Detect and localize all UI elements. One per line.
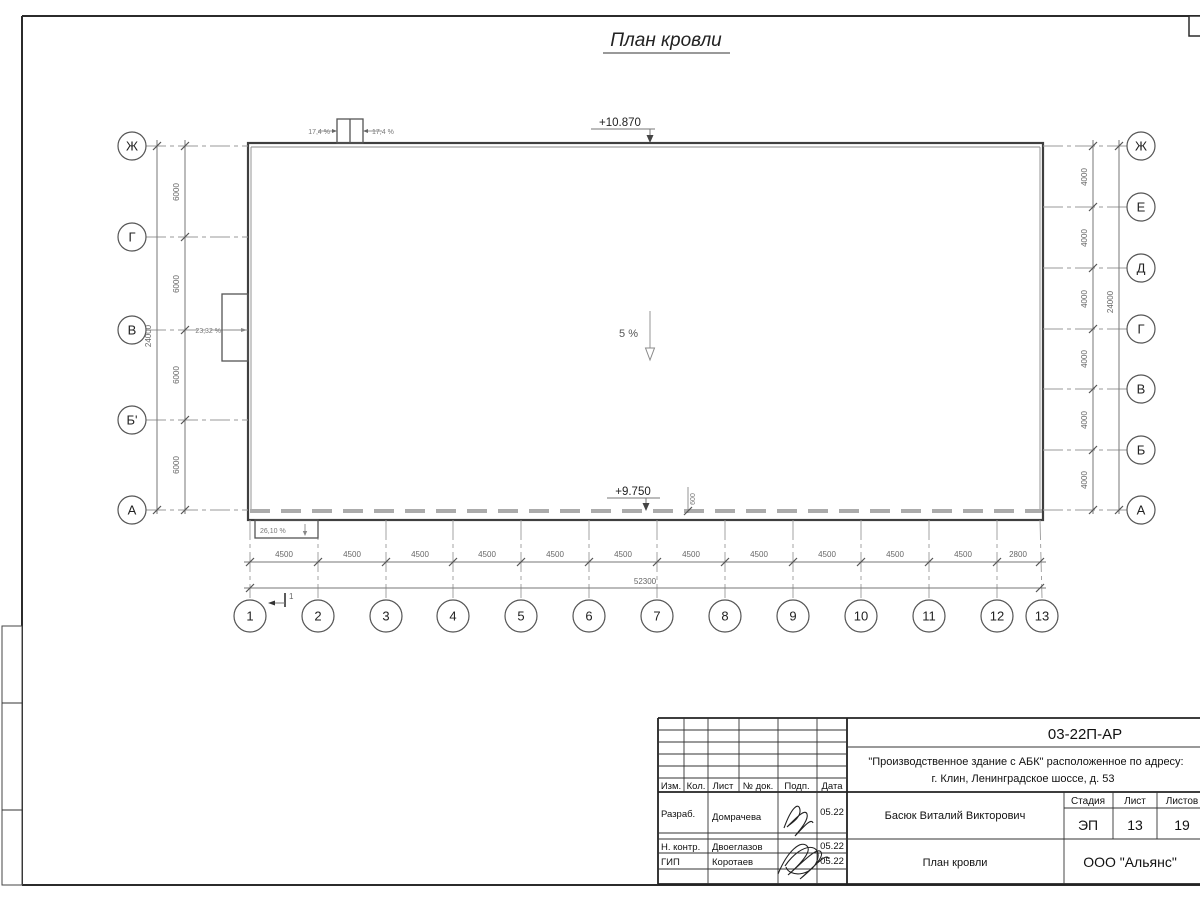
dim-left-4: 6000 [172,456,181,474]
dim-left-2: 6000 [172,275,181,293]
drawing-sheet: План кровли [0,0,1200,900]
col-izm: Изм. [661,781,681,792]
axis-left-2: Г [128,230,135,245]
dim-bottom-9: 4500 [818,550,836,559]
parapet-offset-label: 600 [690,493,697,505]
roof-plan-drawing: План кровли [0,0,1200,900]
signature-1 [784,806,813,836]
axis-right-2: Е [1137,200,1146,215]
dim-right-5: 4000 [1080,411,1089,429]
row2-name: Двоеглазов [712,842,763,853]
section-mark: 1 [268,592,294,607]
dimension-ticks [153,142,1123,592]
axis-right-5: В [1137,382,1146,397]
arrow-right-icon [332,129,337,133]
skylight: 17,4 % 17,4 % [308,119,394,143]
axis-right-7: А [1137,503,1146,518]
project-name-line2: г. Клин, Ленинградское шоссе, д. 53 [932,773,1115,785]
dim-right-2: 4000 [1080,229,1089,247]
skylight-slope-right-label: 17,4 % [372,129,394,136]
section-mark-label: 1 [289,592,294,601]
arrow-right-icon [241,328,247,332]
section-arrow-left-icon [268,601,275,606]
axis-left-3: В [128,323,137,338]
sheet-name: План кровли [923,857,988,869]
dim-bottom-10: 4500 [886,550,904,559]
sheet-label: Лист [1124,796,1146,807]
corner-box [1189,16,1200,36]
arrow-down-icon [643,503,650,511]
slope-canopy-label: 26,10 % [260,528,286,535]
axis-bottom-12: 12 [990,609,1004,624]
elevation-bottom: +9.750 600 [607,486,697,515]
slope-center-label: 5 % [619,328,638,340]
axis-bubbles-right: Ж Е Д Г В Б А [1127,132,1155,524]
axis-right-4: Г [1137,322,1144,337]
axis-right-1: Ж [1135,139,1147,154]
sheets-label: Листов [1166,796,1199,807]
dimension-lines [153,140,1123,592]
axis-right-6: Б [1137,443,1146,458]
axis-left-5: А [128,503,137,518]
stage-label: Стадия [1071,796,1105,807]
roof-outline [248,143,1043,520]
dim-bottom-3: 4500 [411,550,429,559]
axis-bottom-13: 13 [1035,609,1049,624]
dimension-labels: 6000 6000 6000 6000 24000 4000 4000 4000… [144,168,1115,586]
row1-date: 05.22 [820,807,844,818]
dim-bottom-1: 4500 [275,550,293,559]
arrow-down-icon [303,531,307,536]
axis-bottom-3: 3 [382,609,389,624]
row2-date: 05.22 [820,841,844,852]
row1-name: Домрачева [712,812,762,823]
dim-bottom-6: 4500 [614,550,632,559]
col-data: Дата [821,781,843,792]
axis-bottom-10: 10 [854,609,868,624]
axis-bubbles-bottom: 1 2 3 4 5 6 7 8 9 10 11 12 13 [234,600,1058,632]
filing-strip [2,626,22,885]
axis-bottom-11: 11 [922,609,936,624]
row1-role: Разраб. [661,809,695,820]
axis-bottom-5: 5 [517,609,524,624]
page-title: План кровли [610,30,722,51]
row3-role: ГИП [661,857,680,868]
canopy-left: 23,32 % [195,294,248,361]
sheet-value: 13 [1127,817,1143,833]
row2-role: Н. контр. [661,842,700,853]
axis-left-1: Ж [126,139,138,154]
elevation-top: +10.870 [591,117,655,143]
dim-right-1: 4000 [1080,168,1089,186]
axis-bottom-6: 6 [585,609,592,624]
company-name: ООО "Альянс" [1083,854,1177,870]
dim-bottom-total: 52300 [634,577,657,586]
elevation-bottom-label: +9.750 [615,486,651,498]
roof-rect [248,143,1043,520]
slope-left-label: 23,32 % [195,328,221,335]
stage-value: ЭП [1078,817,1098,833]
axis-bottom-1: 1 [246,609,253,624]
axis-bottom-2: 2 [314,609,321,624]
dim-bottom-11: 4500 [954,550,972,559]
axis-bottom-7: 7 [653,609,660,624]
dim-left-1: 6000 [172,183,181,201]
sheets-value: 19 [1174,817,1190,833]
axis-bubbles-left: Ж Г В Б' А [118,132,146,524]
annotations: 17,4 % 17,4 % +10.870 5 % +9.750 [195,117,697,607]
dim-left-3: 6000 [172,366,181,384]
slope-arrow-down-icon [646,348,655,360]
arrow-left-icon [363,129,368,133]
dim-bottom-7: 4500 [682,550,700,559]
dim-right-3: 4000 [1080,290,1089,308]
axis-right-3: Д [1137,261,1146,276]
doc-number: 03-22П-АР [1048,726,1122,743]
axis-bottom-8: 8 [721,609,728,624]
axis-left-4: Б' [126,413,137,428]
row3-name: Коротаев [712,857,753,868]
title-block: 03-22П-АР "Производственное здание с АБК… [658,718,1200,884]
axis-lines [146,146,1127,598]
approver-name: Басюк Виталий Викторович [885,810,1026,822]
slope-center: 5 % [619,311,654,360]
dim-bottom-12: 2800 [1009,550,1027,559]
col-ndok: № док. [743,781,773,792]
dim-bottom-4: 4500 [478,550,496,559]
col-kol: Кол. [687,781,706,792]
arrow-down-icon [647,135,654,143]
dim-right-6: 4000 [1080,471,1089,489]
axis-bottom-4: 4 [449,609,456,624]
dim-bottom-2: 4500 [343,550,361,559]
skylight-slope-left-label: 17,4 % [308,129,330,136]
dim-bottom-5: 4500 [546,550,564,559]
axis-bottom-9: 9 [789,609,796,624]
dim-bottom-8: 4500 [750,550,768,559]
col-podp: Подп. [784,781,809,792]
dim-right-total: 24000 [1106,290,1115,313]
elevation-top-label: +10.870 [599,117,641,129]
project-name-line1: "Производственное здание с АБК" располож… [868,756,1183,768]
canopy-bottom: 26,10 % [255,520,318,538]
col-list: Лист [713,781,734,792]
dim-right-4: 4000 [1080,350,1089,368]
